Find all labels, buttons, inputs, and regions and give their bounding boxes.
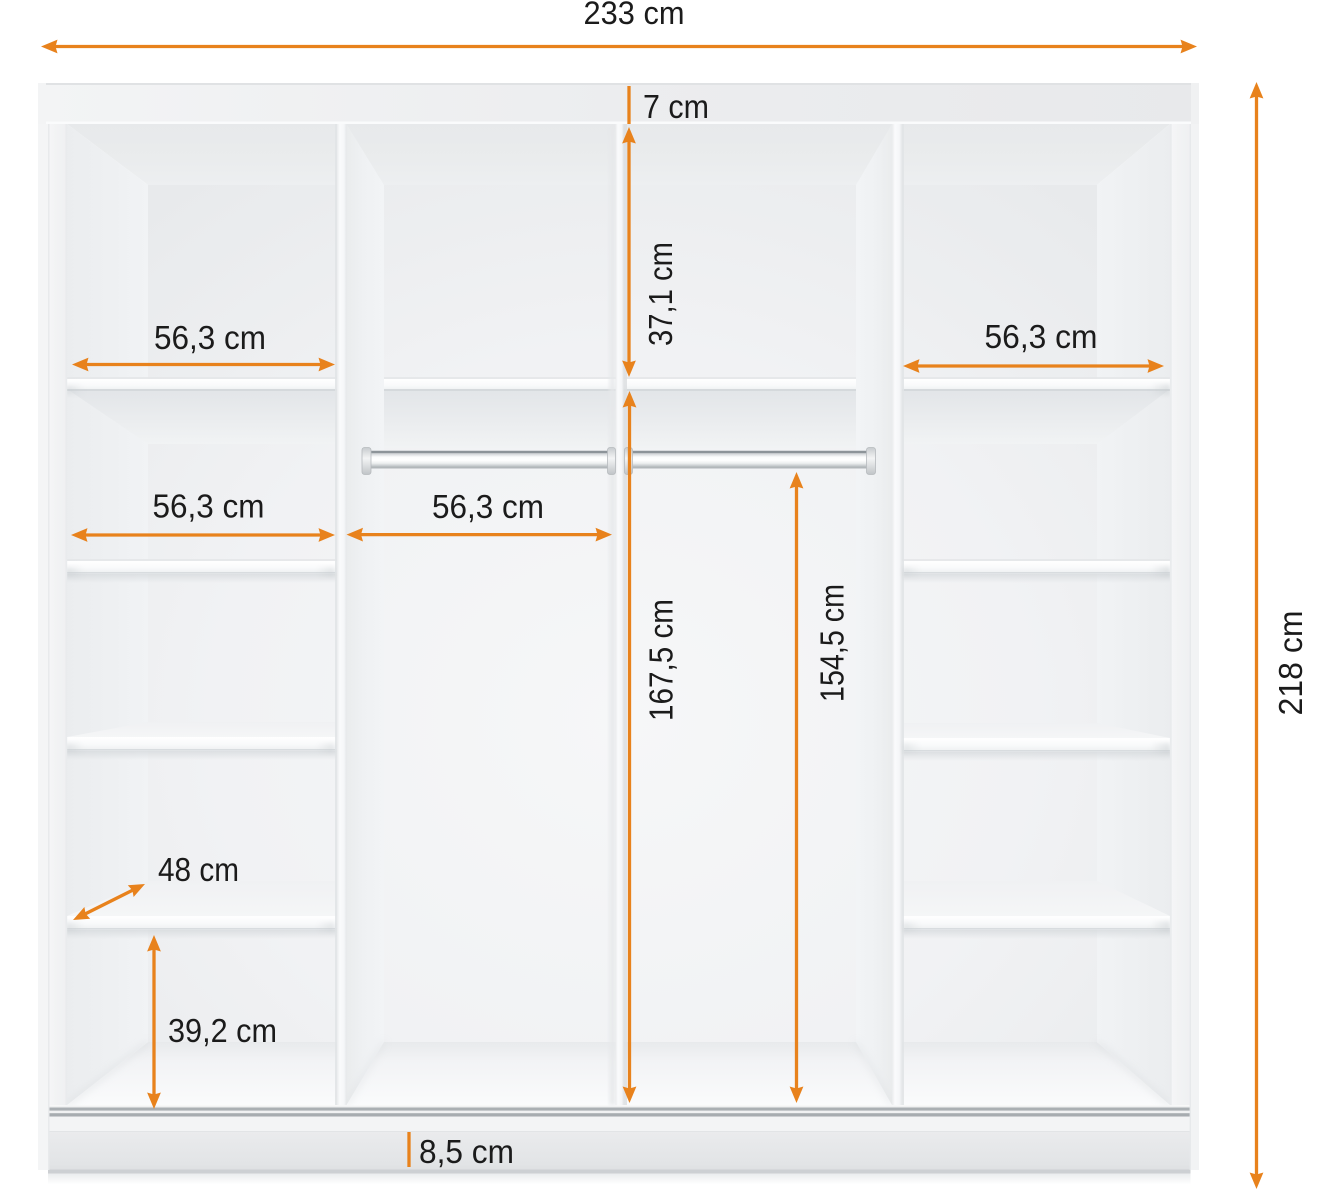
svg-text:8,5 cm: 8,5 cm [419,1133,514,1170]
svg-text:48 cm: 48 cm [158,851,239,888]
svg-text:56,3 cm: 56,3 cm [153,488,265,525]
svg-text:233 cm: 233 cm [584,0,685,31]
svg-text:37,1 cm: 37,1 cm [642,242,679,346]
svg-text:154,5 cm: 154,5 cm [814,584,851,702]
svg-text:218 cm: 218 cm [1272,611,1309,716]
svg-text:56,3 cm: 56,3 cm [985,318,1098,355]
svg-text:56,3 cm: 56,3 cm [154,319,266,356]
svg-text:39,2 cm: 39,2 cm [168,1012,277,1049]
svg-text:56,3 cm: 56,3 cm [432,488,544,525]
svg-text:167,5 cm: 167,5 cm [643,599,680,721]
svg-text:7 cm: 7 cm [643,88,709,125]
